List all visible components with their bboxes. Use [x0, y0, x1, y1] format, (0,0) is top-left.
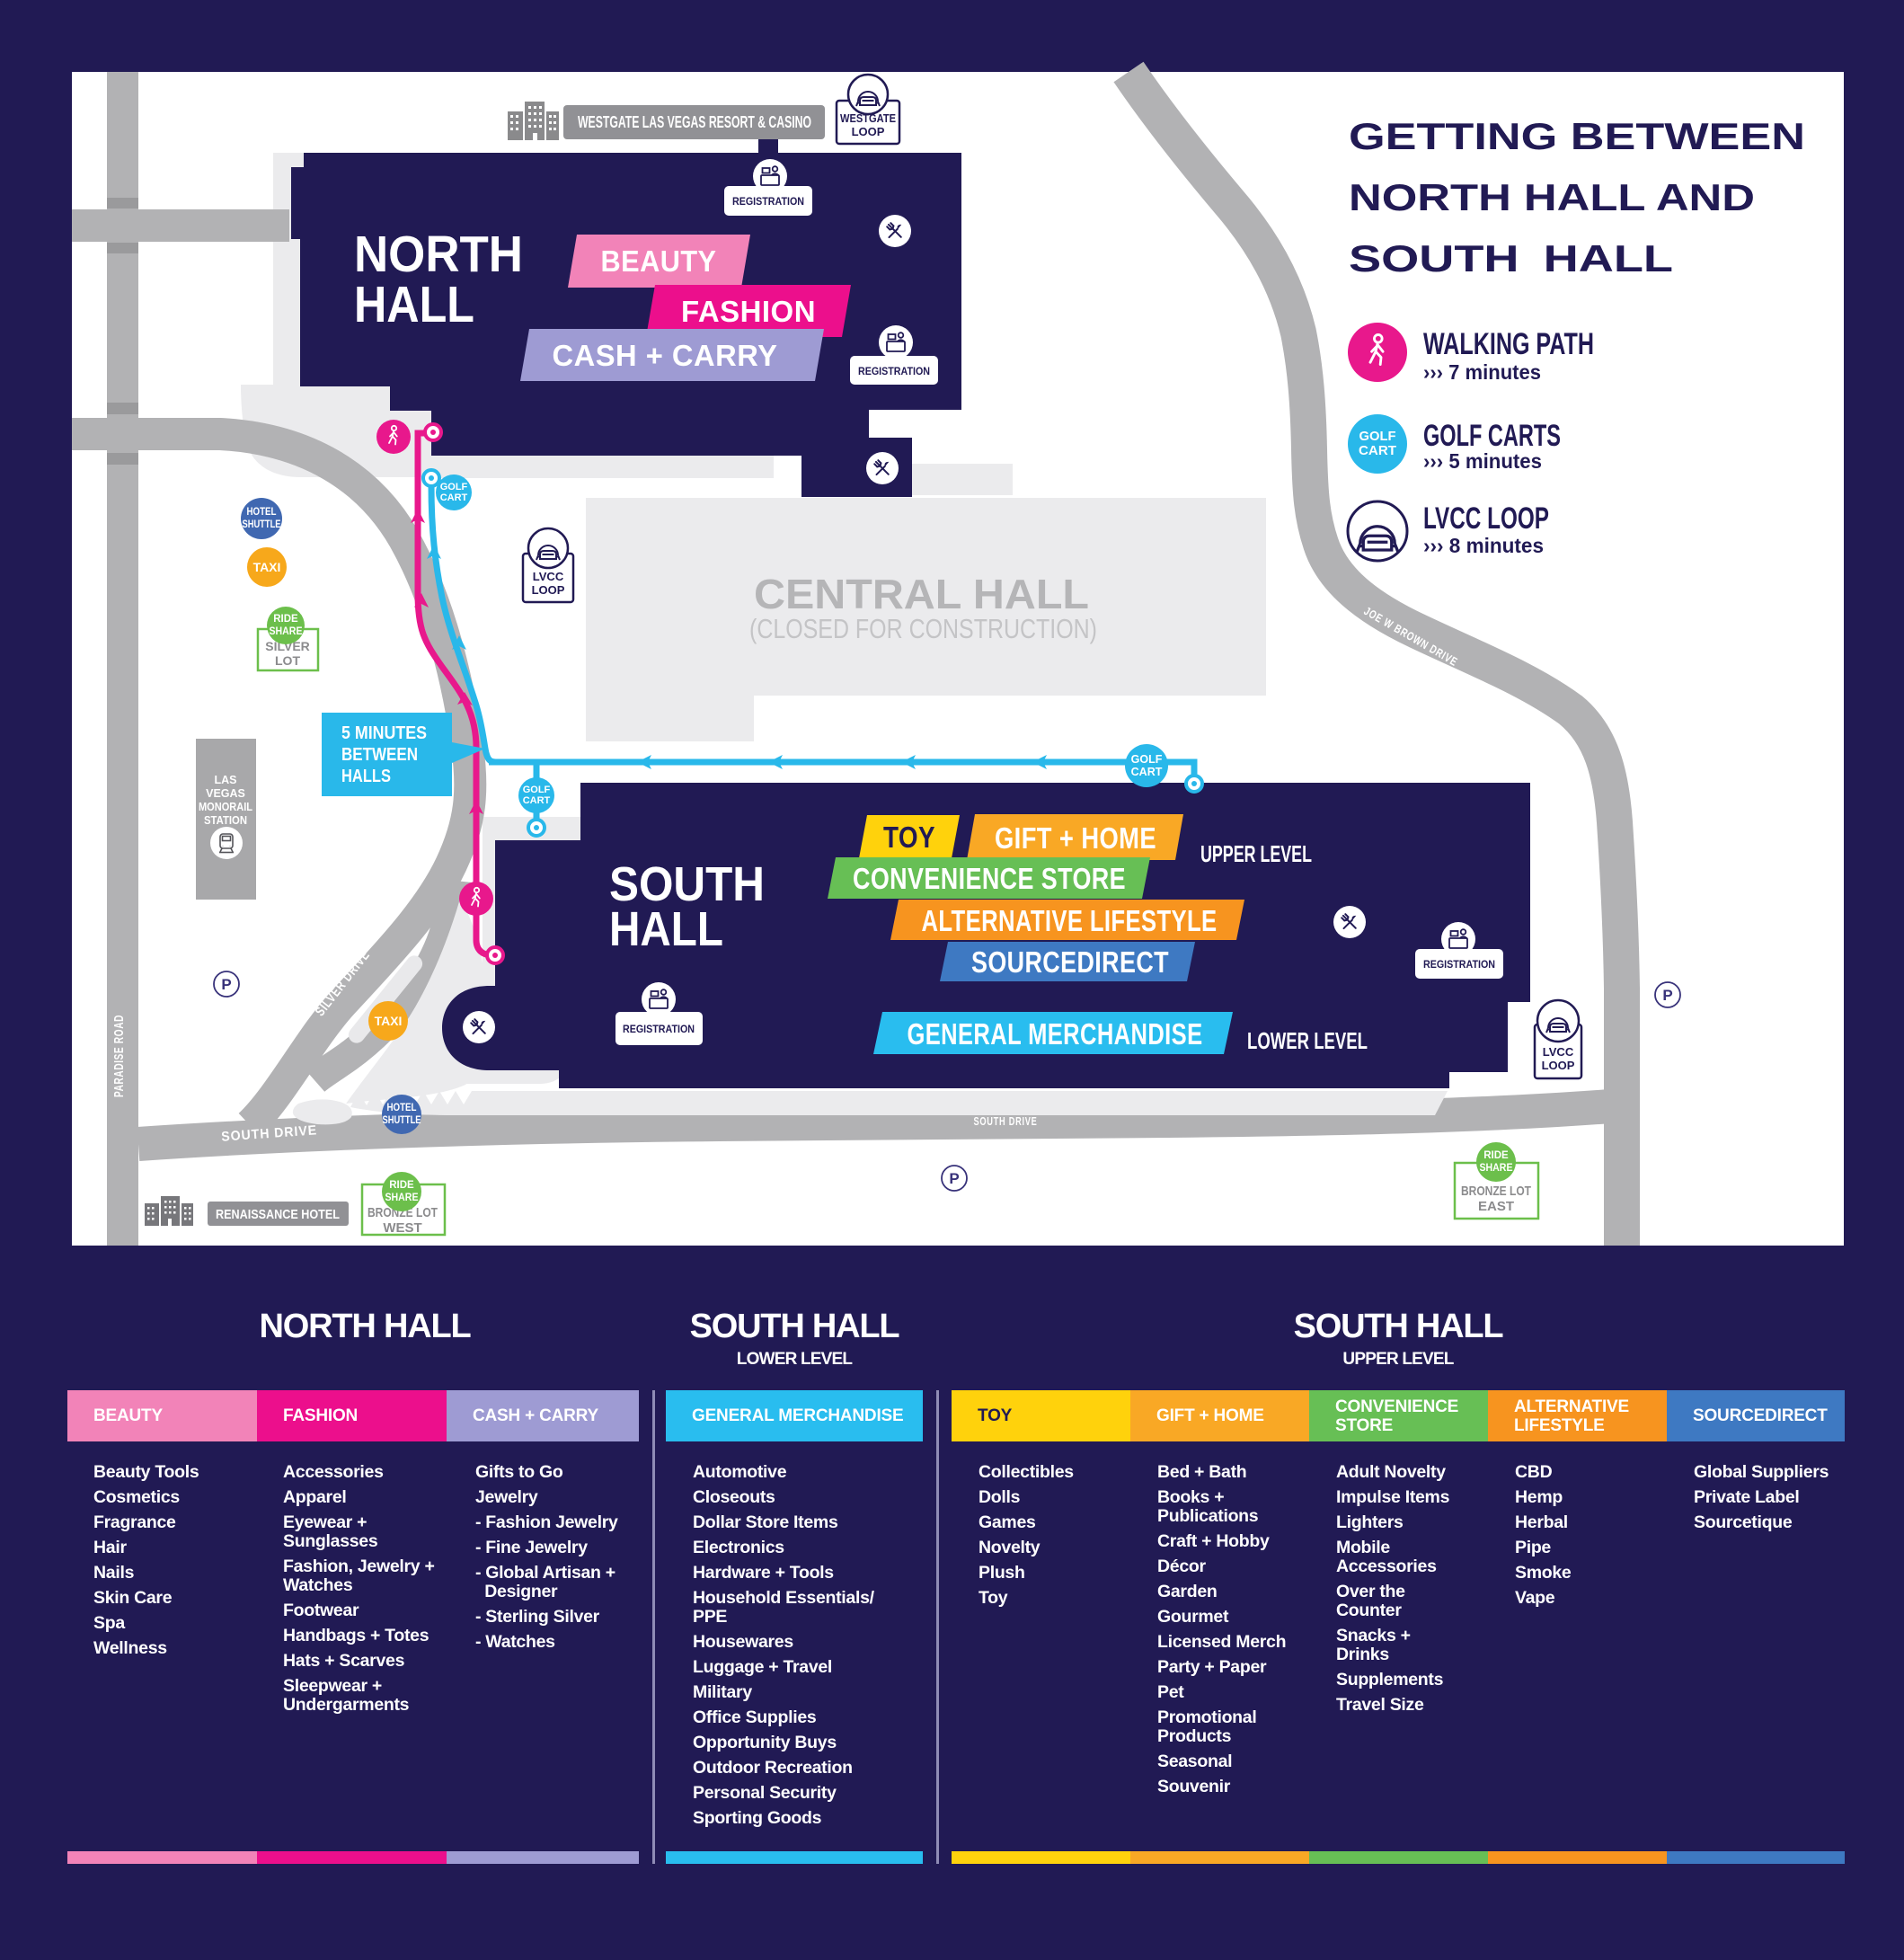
svg-text:››› 8 minutes: ››› 8 minutes	[1423, 534, 1544, 557]
svg-text:WEST: WEST	[383, 1220, 421, 1236]
svg-text:CART: CART	[440, 492, 468, 503]
svg-text:WESTGATE LAS VEGAS RESORT & CA: WESTGATE LAS VEGAS RESORT & CASINO	[578, 113, 811, 131]
svg-text:HOTEL: HOTEL	[247, 507, 277, 518]
svg-text:GETTING BETWEEN: GETTING BETWEEN	[1349, 115, 1805, 157]
svg-text:P: P	[221, 976, 231, 993]
svg-text:GOLF: GOLF	[1131, 753, 1163, 766]
svg-text:REGISTRATION: REGISTRATION	[1423, 958, 1495, 971]
svg-text:GIFT + HOME: GIFT + HOME	[995, 821, 1156, 855]
svg-text:FASHION: FASHION	[681, 295, 816, 328]
svg-text:CART: CART	[1359, 443, 1396, 458]
svg-text:ALTERNATIVE LIFESTYLE: ALTERNATIVE LIFESTYLE	[922, 904, 1218, 937]
svg-text:BETWEEN: BETWEEN	[341, 745, 418, 765]
svg-text:REGISTRATION: REGISTRATION	[732, 195, 804, 208]
svg-text:LOOP: LOOP	[1542, 1059, 1575, 1072]
svg-text:LOT: LOT	[275, 653, 300, 668]
svg-text:BRONZE LOT: BRONZE LOT	[1461, 1184, 1531, 1199]
svg-text:(CLOSED FOR CONSTRUCTION): (CLOSED FOR CONSTRUCTION)	[749, 613, 1097, 644]
svg-text:GOLF CARTS: GOLF CARTS	[1423, 419, 1561, 453]
svg-text:CART: CART	[1131, 766, 1163, 778]
svg-text:EAST: EAST	[1478, 1199, 1514, 1214]
svg-text:TAXI: TAXI	[253, 560, 281, 574]
svg-text:SHUTTLE: SHUTTLE	[243, 519, 281, 530]
svg-text:HALL: HALL	[609, 902, 723, 956]
svg-text:RENAISSANCE HOTEL: RENAISSANCE HOTEL	[216, 1207, 340, 1222]
svg-text:SHARE: SHARE	[270, 626, 303, 637]
svg-text:SOUTH DRIVE: SOUTH DRIVE	[974, 1114, 1038, 1128]
svg-text:P: P	[1662, 987, 1672, 1004]
svg-text:LVCC: LVCC	[1543, 1045, 1574, 1059]
svg-text:WALKING PATH: WALKING PATH	[1423, 327, 1594, 361]
svg-text:LOOP: LOOP	[532, 583, 565, 597]
svg-text:REGISTRATION: REGISTRATION	[858, 365, 930, 377]
svg-text:NORTH HALL AND: NORTH HALL AND	[1349, 176, 1755, 218]
svg-text:CENTRAL HALL: CENTRAL HALL	[754, 571, 1089, 617]
svg-text:REGISTRATION: REGISTRATION	[623, 1023, 695, 1035]
svg-text:LVCC LOOP: LVCC LOOP	[1423, 501, 1549, 536]
svg-text:RIDE: RIDE	[1483, 1150, 1509, 1161]
svg-text:SHARE: SHARE	[385, 1193, 419, 1203]
svg-text:UPPER LEVEL: UPPER LEVEL	[1200, 840, 1312, 867]
svg-text:GOLF: GOLF	[440, 482, 468, 492]
svg-text:HOTEL: HOTEL	[387, 1103, 417, 1113]
svg-text:PARADISE ROAD: PARADISE ROAD	[111, 1015, 127, 1097]
svg-text:SHARE: SHARE	[1480, 1163, 1513, 1174]
svg-text:SHUTTLE: SHUTTLE	[383, 1115, 421, 1126]
svg-text:5 MINUTES: 5 MINUTES	[341, 723, 427, 743]
svg-text:P: P	[949, 1170, 959, 1187]
svg-text:MONORAIL: MONORAIL	[199, 801, 252, 813]
svg-text:RIDE: RIDE	[389, 1180, 414, 1191]
svg-text:LVCC: LVCC	[533, 570, 564, 583]
svg-text:GOLF: GOLF	[523, 785, 551, 795]
svg-text:CART: CART	[523, 795, 551, 806]
svg-text:STATION: STATION	[204, 814, 247, 827]
svg-text:CONVENIENCE STORE: CONVENIENCE STORE	[853, 862, 1126, 895]
svg-text:››› 5 minutes: ››› 5 minutes	[1423, 449, 1542, 473]
svg-text:TOY: TOY	[883, 820, 935, 854]
svg-text:NORTH: NORTH	[354, 226, 523, 283]
svg-text:SOUTH HALL: SOUTH HALL	[1349, 237, 1673, 279]
svg-text:HALLS: HALLS	[341, 767, 391, 786]
svg-text:SOURCEDIRECT: SOURCEDIRECT	[971, 945, 1169, 979]
svg-text:BEAUTY: BEAUTY	[601, 244, 717, 278]
svg-text:GENERAL MERCHANDISE: GENERAL MERCHANDISE	[908, 1017, 1203, 1051]
svg-text:LAS: LAS	[215, 774, 237, 786]
svg-text:LOOP: LOOP	[852, 125, 885, 138]
svg-text:LOWER LEVEL: LOWER LEVEL	[1247, 1027, 1368, 1054]
svg-text:CASH + CARRY: CASH + CARRY	[553, 339, 778, 372]
svg-text:TAXI: TAXI	[375, 1014, 403, 1028]
svg-text:HALL: HALL	[354, 276, 474, 333]
svg-text:RIDE: RIDE	[273, 614, 298, 625]
svg-text:VEGAS: VEGAS	[206, 787, 245, 800]
svg-text:GOLF: GOLF	[1359, 429, 1396, 444]
svg-text:››› 7 minutes: ››› 7 minutes	[1423, 360, 1541, 384]
